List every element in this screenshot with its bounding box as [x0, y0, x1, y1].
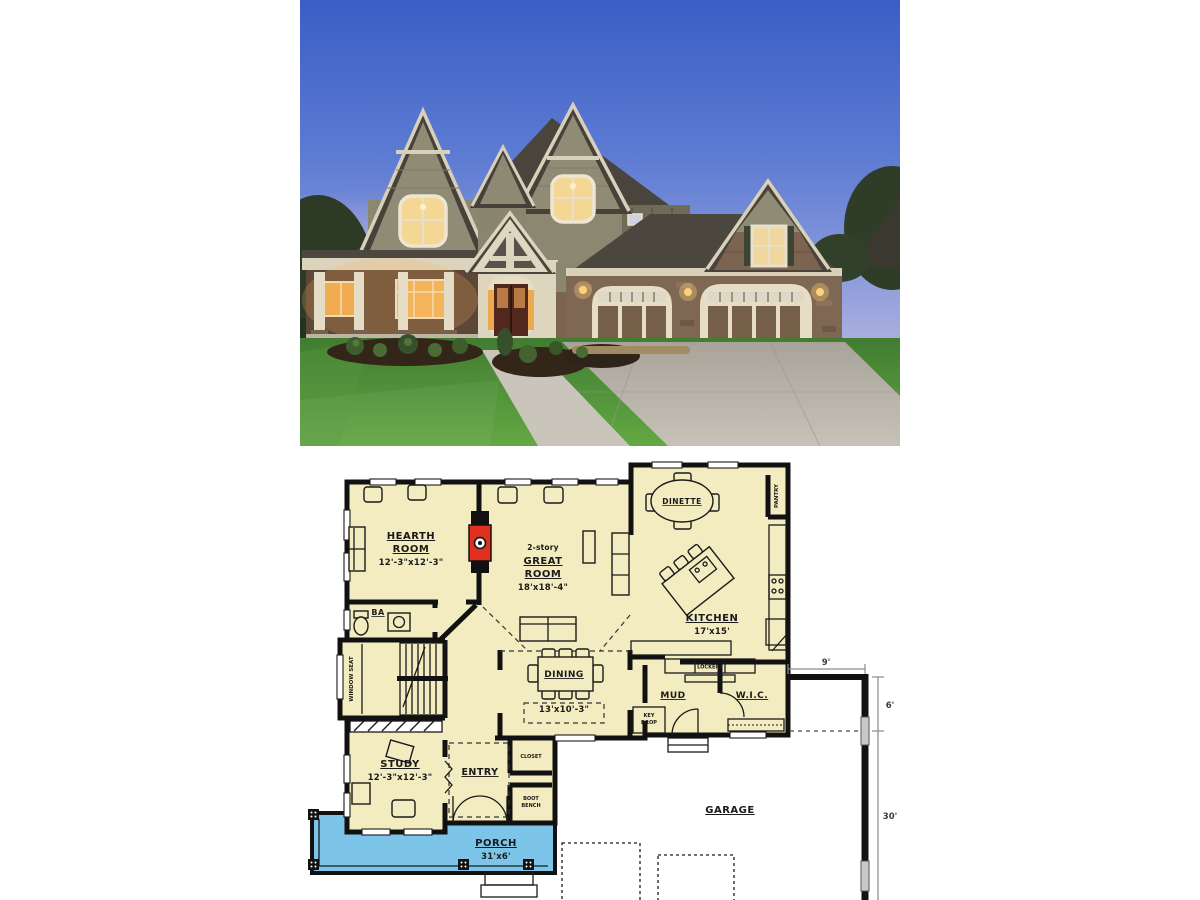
garage-door-double [700, 284, 812, 342]
porch-column [398, 272, 408, 334]
dim-6ft: 6' [886, 701, 895, 711]
wic-label: W.I.C. [736, 691, 768, 701]
study-label: STUDY [380, 759, 420, 770]
ceiling-light [420, 204, 426, 210]
shrub [452, 338, 468, 354]
key-drop-label: KEY [644, 713, 655, 719]
kitchen-label: KITCHEN [686, 613, 739, 624]
floor-plan: HEARTH ROOM 12'-3"x12'-3" 2-story GREAT … [300, 455, 900, 900]
svg-text:18'x18'-4": 18'x18'-4" [518, 583, 568, 593]
porch-column [314, 272, 325, 334]
ceiling-light [570, 183, 576, 189]
svg-text:ROOM: ROOM [525, 569, 562, 580]
shrub [549, 341, 563, 355]
page: HEARTH ROOM 12'-3"x12'-3" 2-story GREAT … [0, 0, 1200, 900]
garage-door-single [592, 286, 672, 342]
shrub [373, 343, 387, 357]
window-seat-label: WINDOW SEAT [349, 656, 355, 701]
dinette-label: DINETTE [662, 497, 701, 506]
sidelight [528, 290, 534, 330]
hearth-room-label: HEARTH [387, 531, 435, 542]
shrub [519, 345, 537, 363]
svg-text:17'x15': 17'x15' [694, 627, 730, 637]
shrub [497, 328, 513, 356]
floor-plan-svg: HEARTH ROOM 12'-3"x12'-3" 2-story GREAT … [300, 455, 900, 900]
porch-column [444, 272, 454, 334]
shrub [576, 346, 588, 358]
dim-30ft: 30' [883, 812, 897, 822]
svg-text:BENCH: BENCH [521, 803, 540, 809]
great-room-label: GREAT [523, 556, 562, 567]
dining-label: DINING [544, 670, 584, 680]
car-space [562, 843, 640, 900]
svg-text:DROP: DROP [641, 720, 657, 726]
wall-sconce [579, 286, 587, 294]
fireplace [469, 511, 491, 573]
mud-label: MUD [660, 691, 685, 701]
svg-text:13'x10'-3": 13'x10'-3" [539, 705, 589, 715]
svg-text:31'x6': 31'x6' [481, 852, 511, 862]
car-space [658, 855, 734, 900]
house-photo-svg [300, 0, 900, 446]
garage-label: GARAGE [705, 805, 754, 816]
rock-border [572, 346, 690, 354]
svg-text:12'-3"x12'-3": 12'-3"x12'-3" [379, 558, 444, 568]
pantry-label: PANTRY [774, 483, 780, 508]
entry-label: ENTRY [461, 767, 498, 778]
porch-column [354, 272, 364, 334]
dim-9ft: 9' [822, 658, 831, 668]
great-room-story: 2-story [527, 543, 559, 552]
wall-sconce [684, 288, 692, 296]
shrub [428, 343, 442, 357]
sidelight [488, 290, 494, 330]
lockers-label: LOCKERS [697, 665, 723, 671]
boot-bench-label: BOOT [523, 796, 539, 802]
house-photo [300, 0, 900, 446]
grounds [300, 328, 900, 446]
svg-text:12'-3"x12'-3": 12'-3"x12'-3" [368, 773, 433, 783]
hatch-strip [350, 721, 442, 732]
closet-label: CLOSET [520, 754, 542, 760]
bathroom-label: BA [371, 608, 385, 617]
wall-sconce [816, 288, 824, 296]
porch-label: PORCH [475, 838, 517, 849]
svg-text:ROOM: ROOM [393, 544, 430, 555]
